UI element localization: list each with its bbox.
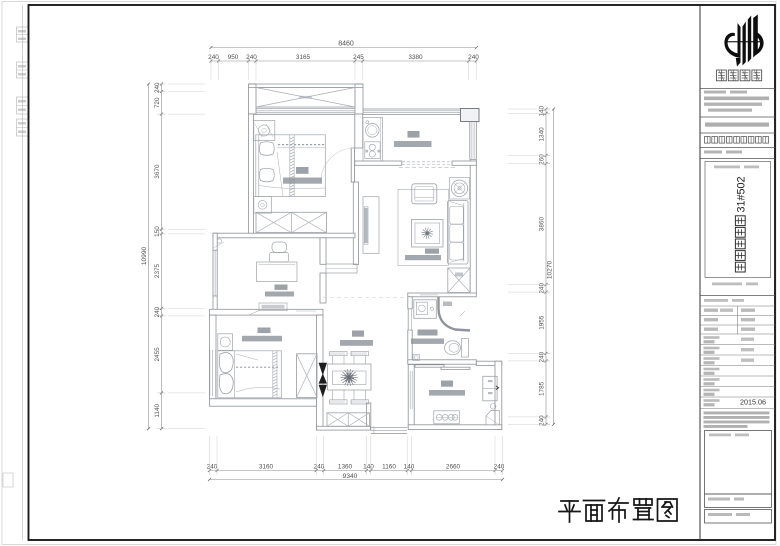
svg-text:1160: 1160: [382, 463, 396, 470]
svg-text:3160: 3160: [259, 463, 274, 470]
svg-text:2015.06: 2015.06: [740, 398, 766, 407]
svg-text:9340: 9340: [343, 473, 358, 480]
svg-text:1785: 1785: [539, 381, 546, 396]
svg-text:1360: 1360: [338, 463, 353, 470]
svg-text:1340: 1340: [539, 127, 546, 142]
svg-text:150: 150: [154, 226, 161, 237]
svg-text:720: 720: [154, 97, 161, 108]
svg-text:2660: 2660: [446, 463, 461, 470]
svg-text:240: 240: [208, 54, 219, 61]
svg-text:10990: 10990: [141, 247, 148, 266]
svg-text:3860: 3860: [539, 217, 546, 232]
svg-text:240: 240: [494, 463, 505, 470]
svg-text:31#502: 31#502: [735, 176, 747, 212]
svg-text:245: 245: [353, 54, 364, 61]
svg-text:2375: 2375: [154, 263, 161, 278]
svg-text:2455: 2455: [154, 347, 161, 362]
svg-text:3670: 3670: [154, 164, 161, 179]
svg-text:1140: 1140: [154, 403, 161, 417]
svg-text:240: 240: [207, 463, 218, 470]
svg-text:240: 240: [246, 54, 257, 61]
svg-text:240: 240: [468, 54, 479, 61]
svg-text:3165: 3165: [296, 54, 311, 61]
svg-text:140: 140: [539, 105, 546, 116]
svg-text:10270: 10270: [547, 261, 554, 280]
svg-text:140: 140: [363, 463, 374, 470]
svg-text:240: 240: [154, 82, 161, 93]
svg-text:240: 240: [154, 306, 161, 317]
svg-text:1955: 1955: [539, 315, 546, 330]
svg-text:8460: 8460: [338, 40, 354, 47]
svg-text:140: 140: [404, 463, 415, 470]
svg-text:950: 950: [228, 54, 239, 61]
svg-text:3380: 3380: [408, 54, 423, 61]
svg-text:240: 240: [314, 463, 325, 470]
